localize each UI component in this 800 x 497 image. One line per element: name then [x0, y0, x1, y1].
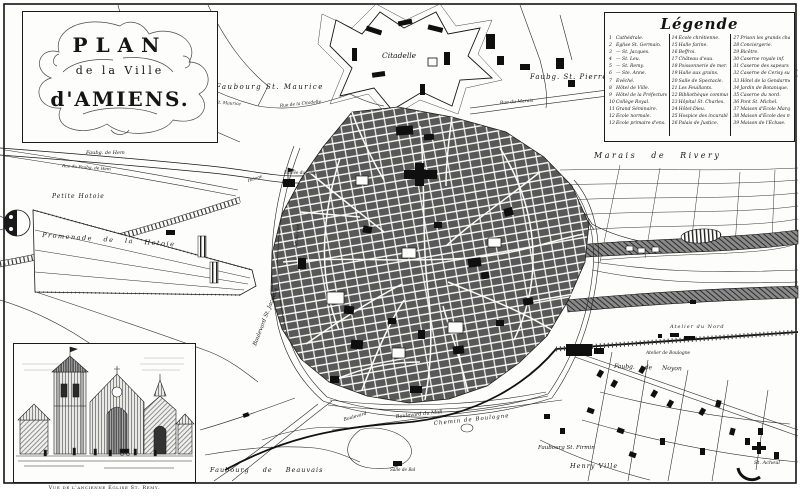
church-buildings [18, 347, 194, 454]
legend-item: 38Maison d'École des minimes. [733, 113, 790, 120]
legend-title: Légende [607, 14, 792, 34]
legend-item: 24Hôtel-Dieu. [672, 106, 729, 113]
legend-item: 36Pont St. Michel. [733, 99, 790, 106]
legend-column-3: 27Prison les grands chapeaux. 28Concierg… [730, 34, 792, 136]
legend-columns: 1Cathédrale. 2Église St. Germain. 3— St.… [607, 34, 792, 136]
legend-item: 26Palais de Justice. [672, 120, 729, 127]
title-cartouche: PLAN de la Ville d'AMIENS. [22, 11, 218, 143]
legend-item: 27Prison les grands chapeaux. [733, 35, 790, 42]
label-faub-st-pierre: Faubg. St. Pierre [529, 73, 607, 81]
legend-item: 19Halle aux grains. [672, 70, 729, 77]
label-faub-st-firmin: Faubourg St. Firmin [537, 445, 595, 451]
legend-item: 17Château d'eau. [672, 56, 729, 63]
legend-item: 28Conciergerie. [733, 42, 790, 49]
legend-item: 7Évêché. [609, 78, 667, 85]
legend-item: 4— St. Leu. [609, 56, 667, 63]
inset-caption: Vue de l'ancienne Église St. Remy. [13, 485, 196, 491]
label-faubourg-de-beauvais: Faubourg de Beauvais [209, 466, 323, 474]
legend-item: 25Hospice des incurables. [672, 113, 729, 120]
legend-column-2: 14École chrétienne. 15Halle farine. 16Be… [669, 34, 731, 136]
legend-item: 14École chrétienne. [672, 35, 729, 42]
label-petite-hotoie: Petite Hotoie [51, 193, 105, 200]
church-engraving [14, 344, 195, 482]
cartouche-title-plan: PLAN [73, 33, 168, 57]
label-faubourg-st-maurice: Faubourg St. Maurice [215, 83, 324, 91]
legend-item: 20Salle de Spectacle. [672, 78, 729, 85]
cartouche-title-amiens: d'AMIENS. [50, 87, 189, 111]
legend-item: 10Collège Royal. [609, 99, 667, 106]
legend-item: 32Caserne de Cerisy sup. [733, 70, 790, 77]
legend-item: 29Bicêtre. [733, 49, 790, 56]
label-faub-de-hem: Faubg. de Hem [85, 150, 125, 156]
label-citadelle: Citadelle [382, 51, 417, 60]
label-salle-de-bal: Salle de Bal [390, 467, 416, 472]
legend-item: 31Caserne des sapeurs inf. [733, 63, 790, 70]
legend-item: 5— St. Remy. [609, 63, 667, 70]
legend-item: 9Hôtel de la Préfecture. [609, 92, 667, 99]
sky-hatching [22, 358, 184, 370]
legend-item: 3— St. Jacques. [609, 49, 667, 56]
legend-item: 35Caserne du nord. [733, 92, 790, 99]
legend-item: 21Les Feuillants. [672, 85, 729, 92]
legend-item: 11Grand Séminaire. [609, 106, 667, 113]
label-st-acheul: St. Acheul [754, 460, 780, 466]
legend-column-1: 1Cathédrale. 2Église St. Germain. 3— St.… [607, 34, 669, 136]
legend-item: 37Maison d'École Marques. [733, 106, 790, 113]
legend-item: 8Hôtel de Ville. [609, 85, 667, 92]
legend-item: 22Bibliothèque communale. [672, 92, 729, 99]
cartouche-subtitle: de la Ville [76, 64, 164, 77]
legend-item: 2Église St. Germain. [609, 42, 667, 49]
label-marais-de-rivery: Marais de Rivery [593, 151, 721, 160]
label-entree-du-gare: Entrée du Gare [283, 170, 317, 175]
label-atelier-de-boulogne: Atelier de Boulogne [645, 351, 691, 356]
cartouche-art: PLAN de la Ville d'AMIENS. [23, 12, 217, 142]
legend-item: 18Poissonnerie de mer. [672, 63, 729, 70]
legend-item: 39Maison de l'Écluse. [733, 120, 790, 127]
legend-item: 6— Ste. Anne. [609, 70, 667, 77]
legend-item: 16Beffroi. [672, 49, 729, 56]
legend-item: 1Cathédrale. [609, 35, 667, 42]
legend-item: 33Hôtel de la Gendarmerie. [733, 78, 790, 85]
legend-item: 15Halle farine. [672, 42, 729, 49]
legend-item: 23Hôpital St. Charles. [672, 99, 729, 106]
legend-item: 34Jardin de Botanique. [733, 85, 790, 92]
inset-engraving [13, 343, 196, 483]
legend-item: 30Caserne royale inf. [733, 56, 790, 63]
legend-panel: Légende 1Cathédrale. 2Église St. Germain… [604, 12, 795, 142]
label-henry-ville: Henry Ville [569, 462, 618, 470]
legend-item: 12École normale. [609, 113, 667, 120]
legend-item: 13École primaire d'ens. mutuel. [609, 120, 667, 127]
label-atelier-du-nord: Atelier du Nord [669, 324, 725, 330]
